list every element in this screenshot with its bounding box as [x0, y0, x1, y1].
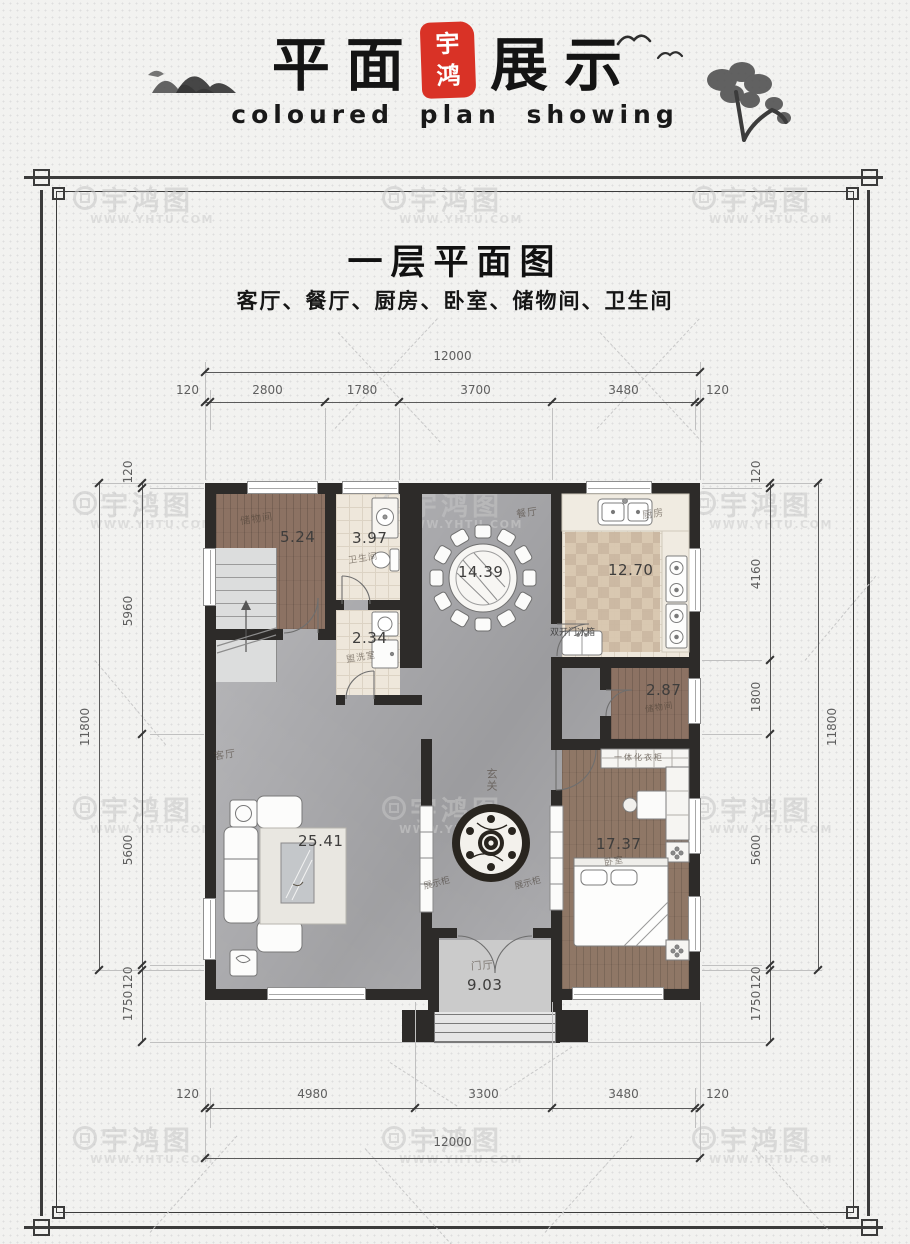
dim-label: 120	[749, 460, 763, 483]
dim-label: 120	[749, 966, 763, 989]
dim-guide	[325, 408, 326, 480]
dim-label: 3700	[460, 383, 491, 397]
dim-label: 3480	[608, 1087, 639, 1101]
room-area-laundry: 2.34	[352, 629, 387, 647]
dim-line-overall	[99, 483, 100, 970]
wardrobe-label: 一体化衣柜	[614, 752, 664, 763]
dim-guide	[399, 408, 400, 480]
dim-label: 2800	[252, 383, 283, 397]
dim-label: 11800	[825, 707, 839, 745]
dim-label: 5600	[121, 834, 135, 865]
dim-guide	[695, 390, 696, 430]
room-area-bedroom: 17.37	[596, 835, 641, 853]
dim-guide	[150, 1042, 434, 1043]
dim-label: 1780	[347, 383, 378, 397]
sofa-set	[224, 796, 346, 976]
stair-arrow	[217, 600, 276, 653]
dim-label: 120	[176, 1087, 199, 1101]
room-area-living: 25.41	[298, 832, 343, 850]
dim-label: 5600	[749, 834, 763, 865]
dim-label: 1750	[121, 991, 135, 1022]
fridge-label: 双开门冰箱	[550, 625, 595, 638]
dim-guide	[560, 1042, 766, 1043]
dim-guide	[702, 734, 762, 735]
dim-guide	[150, 734, 204, 735]
room-area-dining: 14.39	[458, 563, 503, 581]
dim-guide	[700, 362, 701, 480]
dim-guide	[92, 483, 204, 484]
dim-guide	[415, 1002, 416, 1112]
room-area-bath: 3.97	[352, 529, 387, 547]
dim-guide	[205, 1002, 206, 1162]
dim-guide	[700, 1002, 701, 1162]
dim-line-overall	[205, 372, 700, 373]
dim-label: 3480	[608, 383, 639, 397]
dim-label: 1800	[749, 682, 763, 713]
dim-line	[770, 483, 771, 1042]
dim-guide	[150, 965, 204, 966]
dim-label: 120	[121, 966, 135, 989]
dim-guide	[92, 970, 204, 971]
dim-label: 120	[706, 383, 729, 397]
dim-line	[205, 1108, 700, 1109]
dim-guide	[702, 488, 762, 489]
room-area-kitchen: 12.70	[608, 561, 653, 579]
dim-guide	[150, 488, 204, 489]
room-area-storage1: 5.24	[280, 528, 315, 546]
furniture-layer	[0, 0, 910, 1244]
dim-label: 5960	[121, 596, 135, 627]
dim-label: 12000	[433, 1135, 471, 1149]
foyer-rug	[452, 804, 530, 882]
room-area-entry: 9.03	[467, 976, 502, 994]
floor-plan-page: 平面 宇 鸿 展示 coloured plan showing 一层平面图 客	[0, 0, 910, 1244]
dim-label: 11800	[78, 707, 92, 745]
dim-guide	[702, 660, 762, 661]
dim-guide	[552, 408, 553, 480]
dim-label: 120	[706, 1087, 729, 1101]
dim-label: 12000	[433, 349, 471, 363]
dim-guide	[210, 390, 211, 430]
bedroom-furniture	[574, 749, 689, 960]
room-name-foyer: 玄关	[483, 768, 499, 792]
dim-label: 3300	[468, 1087, 499, 1101]
room-area-storage2: 2.87	[646, 681, 681, 699]
dim-label: 120	[121, 460, 135, 483]
dim-label: 4980	[297, 1087, 328, 1101]
dim-line-overall	[205, 1158, 700, 1159]
dim-label: 120	[176, 383, 199, 397]
dim-line-overall	[818, 483, 819, 970]
room-name-entry: 门厅	[471, 957, 495, 974]
dim-label: 1750	[749, 991, 763, 1022]
dim-guide	[552, 1002, 553, 1112]
dim-line	[205, 402, 700, 403]
dim-guide	[205, 362, 206, 480]
dim-label: 4160	[749, 559, 763, 590]
dim-line	[142, 483, 143, 1042]
